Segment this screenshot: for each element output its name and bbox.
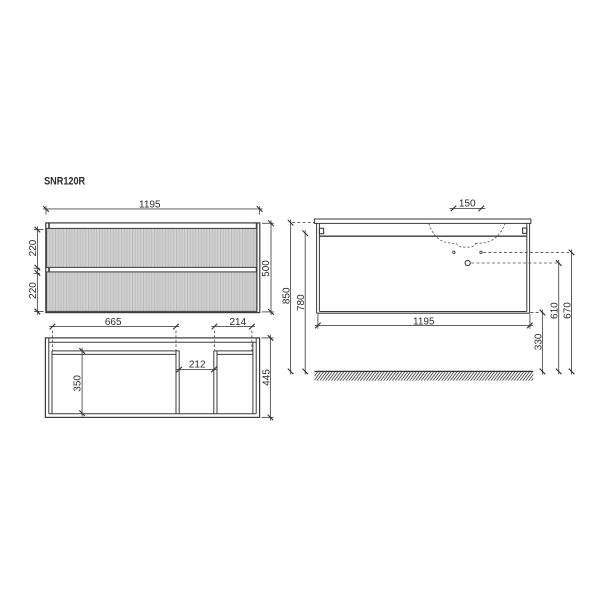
svg-text:212: 212 <box>189 360 206 371</box>
svg-text:665: 665 <box>105 317 122 328</box>
svg-text:1195: 1195 <box>413 316 435 327</box>
svg-text:500: 500 <box>261 260 272 277</box>
svg-text:445: 445 <box>261 369 272 386</box>
svg-text:220: 220 <box>28 282 39 299</box>
svg-text:150: 150 <box>459 199 476 210</box>
svg-text:330: 330 <box>534 333 545 350</box>
svg-text:220: 220 <box>28 239 39 256</box>
svg-text:850: 850 <box>282 287 293 304</box>
svg-text:610: 610 <box>549 302 560 319</box>
svg-text:780: 780 <box>296 294 307 311</box>
svg-text:350: 350 <box>72 375 83 392</box>
svg-text:214: 214 <box>229 317 246 328</box>
svg-text:SNR120R: SNR120R <box>44 176 85 188</box>
svg-text:1195: 1195 <box>139 200 161 211</box>
svg-text:670: 670 <box>562 302 573 319</box>
